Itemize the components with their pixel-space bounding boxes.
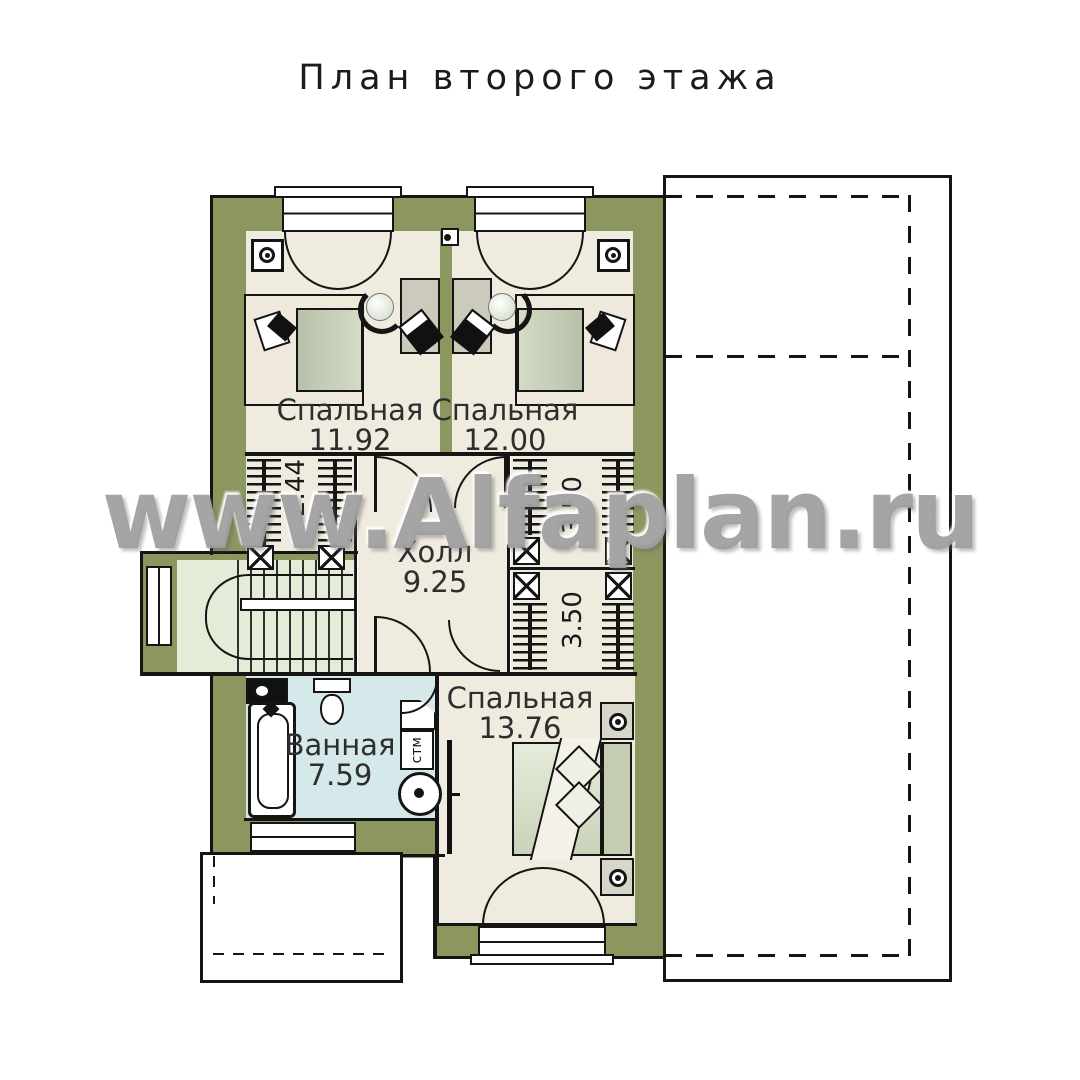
- nightstand-bedroom-3-top: [600, 702, 634, 740]
- bed-3-headboard: [602, 742, 632, 856]
- nightstand-lamp-dot-2: [615, 875, 621, 881]
- window-bedroom-1: [282, 196, 394, 232]
- room-label-bedroom-2: Спальная 12.00: [425, 396, 585, 455]
- door-leaf-stair-hall: [374, 616, 377, 672]
- garage-roof-dashed-right: [908, 195, 911, 957]
- dimension-closet-right-bottom: 3.50: [556, 572, 590, 668]
- watermark: www.Alfaplan.ru: [0, 458, 1080, 571]
- garage-roof-dashed-top: [665, 195, 911, 198]
- tv-bedroom-3-icon: [447, 740, 452, 854]
- room-name: Ванная: [262, 731, 418, 761]
- wall-line-bathroom-bottom: [244, 818, 438, 821]
- nightstand-bedroom-3-bottom: [600, 858, 634, 896]
- garage-roof-ridge-line: [665, 355, 911, 358]
- balcony-roof: [200, 852, 403, 983]
- room-name: Спальная: [440, 684, 600, 714]
- window-stair-hall: [146, 566, 172, 646]
- window-bathroom: [250, 822, 356, 852]
- stair-handrail: [240, 598, 356, 611]
- window-sill-bedroom-3: [470, 954, 614, 965]
- corner-lamp-bedroom-1: [251, 239, 284, 272]
- corner-lamp-bedroom-2: [597, 239, 630, 272]
- closet-right-bottom-hangers-2: [602, 603, 634, 670]
- toilet-bowl: [320, 694, 344, 725]
- tv-stand-icon: [452, 793, 460, 796]
- balcony-dashed-left: [213, 856, 215, 904]
- floor-plan-page: План второго этажа: [0, 0, 1080, 1080]
- bed-1-mattress: [296, 308, 363, 392]
- room-label-bedroom-3: Спальная 13.76: [440, 684, 600, 743]
- closet-right-bottom-shelf-1: [513, 572, 540, 600]
- counter-basin-icon: [254, 684, 270, 698]
- wall-left-lower: [212, 676, 246, 822]
- closet-right-bottom-shelf-2: [605, 572, 632, 600]
- corner-lamp-dot: [265, 253, 270, 258]
- closet-right-bottom-hangers-1: [513, 603, 547, 670]
- corner-lamp-dot-2: [611, 253, 616, 258]
- stair-rail: [205, 574, 353, 660]
- bathroom-counter: [246, 678, 288, 704]
- chimney-flue-dot: [444, 234, 451, 241]
- toilet-tank: [313, 678, 351, 693]
- window-bedroom-2: [474, 196, 586, 232]
- room-area: 7.59: [262, 761, 418, 791]
- wall-top: [212, 197, 664, 231]
- wall-right: [633, 197, 663, 958]
- room-area: 13.76: [440, 714, 600, 744]
- outline-left-lower: [210, 674, 213, 856]
- chair-bedroom-1: [366, 293, 394, 321]
- room-label-bathroom: Ванная 7.59: [262, 731, 418, 790]
- room-area: 9.25: [365, 568, 505, 598]
- nightstand-lamp-dot-1: [615, 719, 621, 725]
- balcony-dashed-bottom: [213, 953, 385, 955]
- room-area: 12.00: [425, 426, 585, 456]
- room-name: Спальная: [425, 396, 585, 426]
- room-name: Спальная: [270, 396, 430, 426]
- wall-line-mid: [140, 672, 637, 676]
- chair-bedroom-2: [488, 293, 516, 321]
- garage-roof-dashed-bottom: [665, 954, 911, 957]
- page-title: План второго этажа: [0, 58, 1080, 98]
